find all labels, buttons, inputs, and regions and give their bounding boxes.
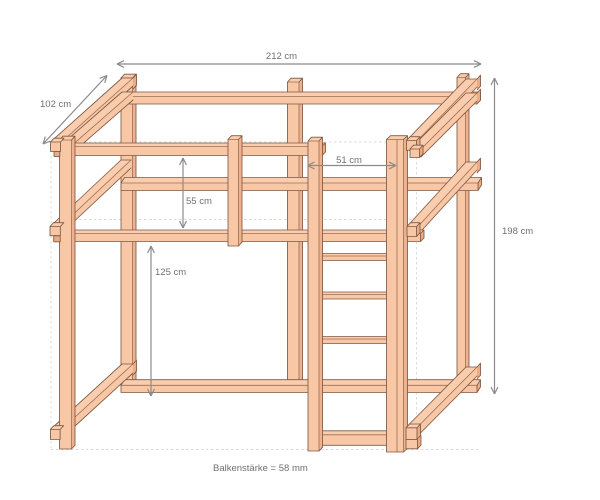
svg-text:102 cm: 102 cm	[40, 99, 71, 110]
svg-text:198 cm: 198 cm	[502, 226, 533, 237]
svg-text:125 cm: 125 cm	[155, 267, 186, 278]
svg-text:55 cm: 55 cm	[186, 196, 212, 207]
svg-text:212 cm: 212 cm	[266, 51, 297, 62]
svg-text:Balkenstärke = 58 mm: Balkenstärke = 58 mm	[213, 463, 308, 474]
svg-text:51 cm: 51 cm	[336, 155, 362, 166]
